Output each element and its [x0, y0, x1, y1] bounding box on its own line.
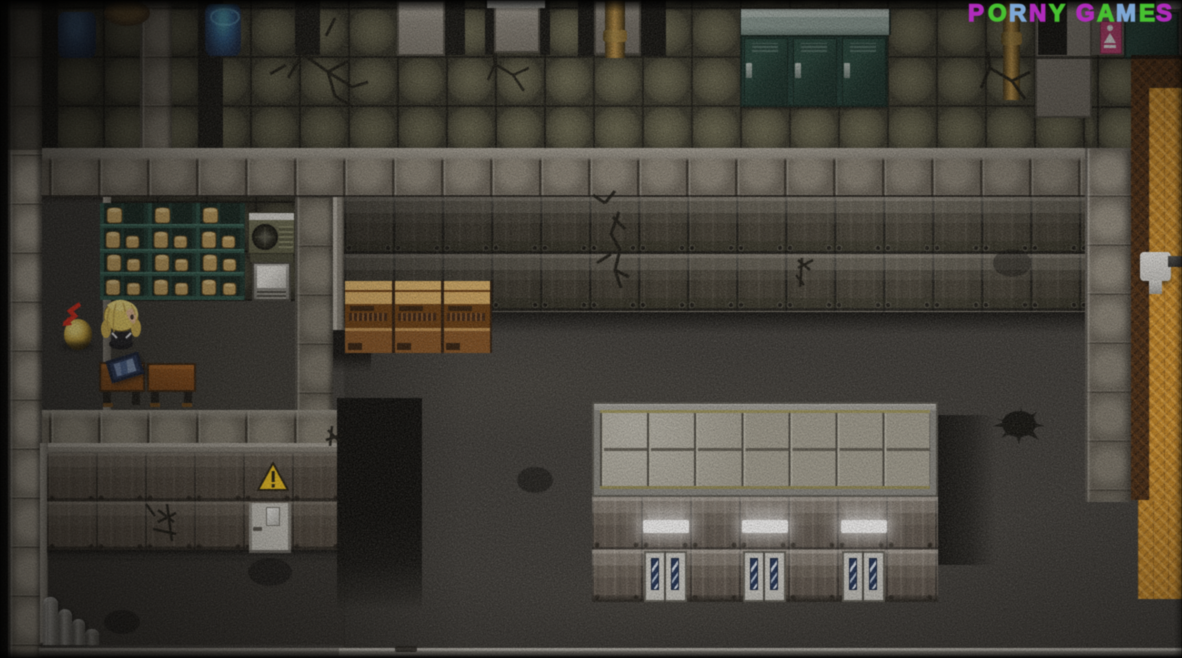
svg-text:S: S: [1156, 0, 1172, 27]
svg-text:A: A: [1097, 0, 1114, 27]
svg-text:O: O: [988, 0, 1007, 27]
svg-text:M: M: [1116, 0, 1136, 27]
svg-text:N: N: [1029, 0, 1046, 27]
svg-text:Y: Y: [1049, 0, 1065, 27]
svg-text:E: E: [1139, 0, 1155, 27]
svg-text:R: R: [1009, 0, 1026, 27]
svg-text:G: G: [1076, 0, 1095, 27]
svg-text:P: P: [968, 0, 984, 27]
